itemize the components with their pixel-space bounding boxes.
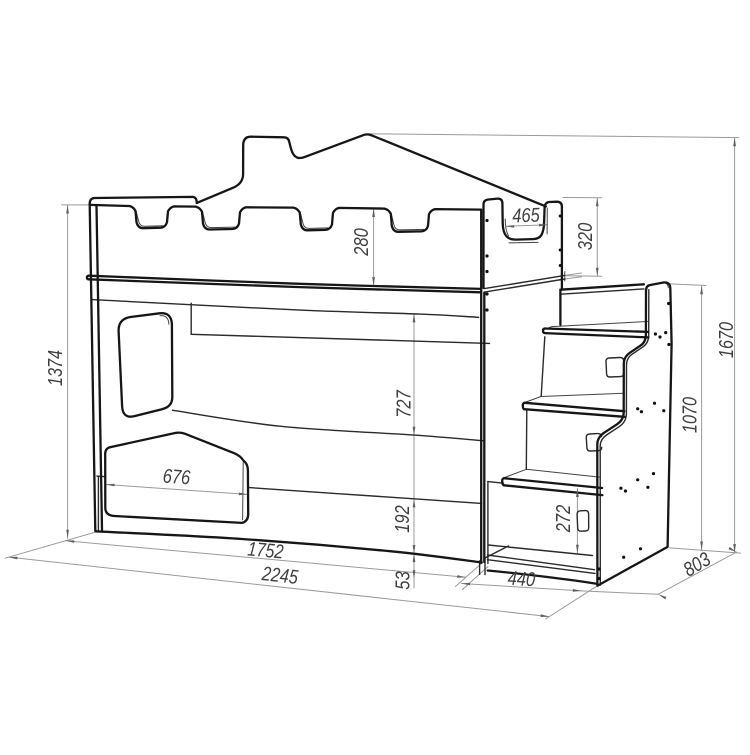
svg-text:1374: 1374 <box>45 350 67 386</box>
svg-text:192: 192 <box>392 505 414 533</box>
svg-text:440: 440 <box>507 568 536 592</box>
svg-text:1752: 1752 <box>247 538 285 563</box>
svg-text:320: 320 <box>575 223 597 251</box>
svg-text:272: 272 <box>553 505 575 533</box>
svg-text:1070: 1070 <box>680 397 702 433</box>
svg-text:727: 727 <box>394 390 416 418</box>
svg-text:676: 676 <box>162 466 192 490</box>
svg-text:2245: 2245 <box>260 563 300 589</box>
svg-text:465: 465 <box>512 205 541 228</box>
svg-text:1670: 1670 <box>716 322 738 358</box>
svg-text:53: 53 <box>393 571 415 590</box>
svg-text:280: 280 <box>351 228 373 256</box>
